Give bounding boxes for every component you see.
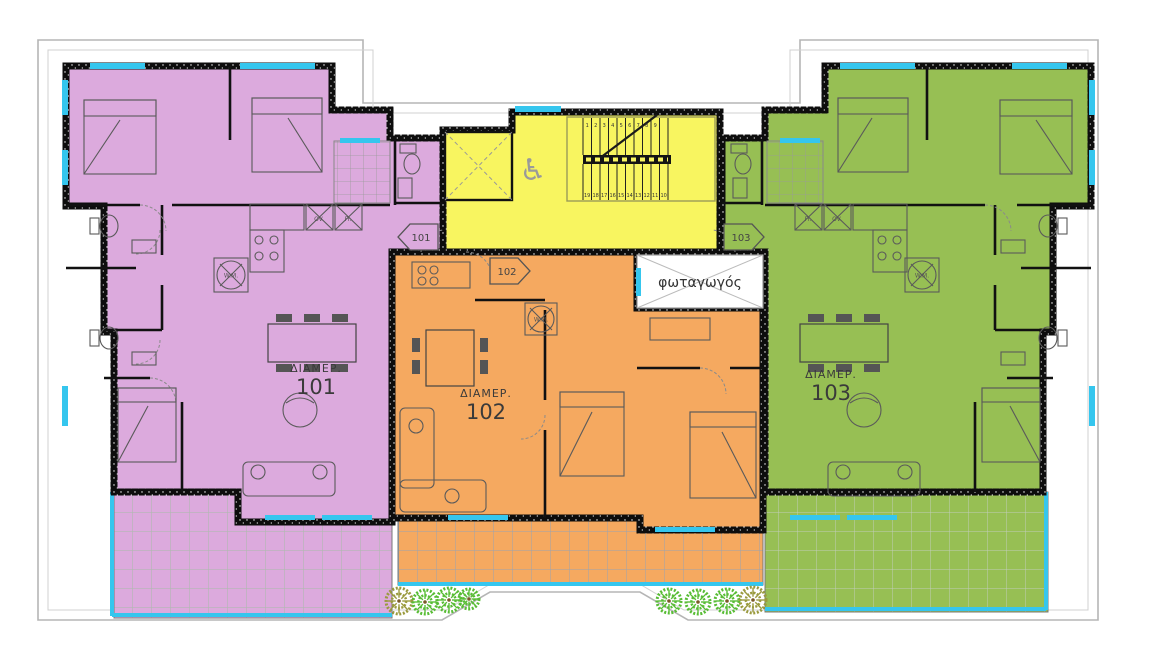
svg-text:Fr.: Fr.: [345, 216, 352, 223]
svg-text:17: 17: [601, 193, 607, 199]
balcony-103: [767, 141, 823, 203]
svg-text:W.M.: W.M.: [224, 273, 238, 280]
floor-plan-page: φωταγωγός: [0, 0, 1157, 670]
apartment-103-zone: [722, 66, 1091, 492]
svg-text:19: 19: [584, 193, 590, 199]
svg-text:1: 1: [586, 123, 589, 129]
svg-text:7: 7: [637, 123, 640, 129]
svg-text:W.M.: W.M.: [534, 317, 548, 324]
svg-text:3: 3: [603, 123, 606, 129]
svg-text:OV.: OV.: [314, 216, 324, 223]
svg-text:103: 103: [731, 233, 750, 244]
apartment-103-label: ΔΙΑΜΕΡ.: [805, 368, 857, 381]
light-well-label: φωταγωγός: [658, 275, 742, 291]
apartment-101-label: ΔΙΑΜΕΡ.: [290, 362, 342, 375]
svg-text:14: 14: [627, 193, 633, 199]
svg-text:6: 6: [628, 123, 631, 129]
light-well: φωταγωγός: [637, 255, 763, 308]
svg-text:101: 101: [411, 233, 430, 244]
apartment-102-number: 102: [466, 400, 506, 424]
svg-text:12: 12: [644, 193, 650, 199]
wheelchair-icon: ♿: [520, 153, 547, 188]
svg-text:10: 10: [661, 193, 667, 199]
svg-text:16: 16: [610, 193, 616, 199]
svg-text:102: 102: [497, 267, 516, 278]
svg-text:18: 18: [593, 193, 599, 199]
svg-text:2: 2: [594, 123, 597, 129]
plant-icon: [437, 588, 461, 612]
apartment-101-number: 101: [296, 375, 336, 399]
plant-icon: [715, 589, 739, 613]
svg-text:W.M.: W.M.: [915, 273, 929, 280]
svg-text:OV.: OV.: [832, 216, 842, 223]
svg-text:4: 4: [611, 123, 614, 129]
plant-icon: [657, 589, 681, 613]
plant-icon: [740, 587, 766, 613]
elevator: [445, 132, 512, 200]
floor-plan-drawing: φωταγωγός: [0, 0, 1157, 670]
svg-text:15: 15: [618, 193, 624, 199]
apartment-102-label: ΔΙΑΜΕΡ.: [460, 387, 512, 400]
svg-text:9: 9: [654, 123, 657, 129]
svg-text:11: 11: [652, 193, 658, 199]
balcony-101: [334, 141, 390, 203]
svg-text:8: 8: [645, 123, 648, 129]
plant-icon: [459, 589, 479, 609]
apartment-103-number: 103: [811, 381, 851, 405]
svg-text:Fr.: Fr.: [805, 216, 812, 223]
terrace-103: [765, 492, 1048, 612]
svg-text:5: 5: [620, 123, 623, 129]
svg-text:13: 13: [635, 193, 641, 199]
